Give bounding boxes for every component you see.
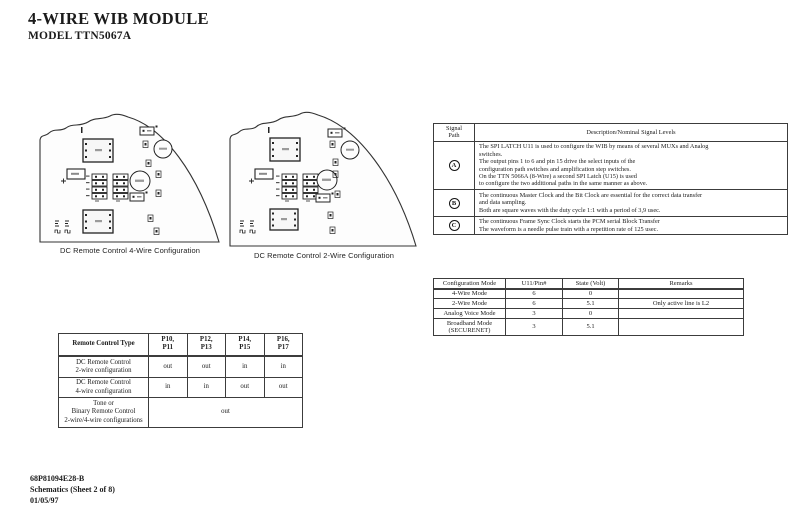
jumper-state-span-cell: out bbox=[149, 398, 303, 428]
caption-2wire: DC Remote Control 2-Wire Configuration bbox=[226, 251, 422, 260]
remote-control-table: Remote Control Type P10, P11 P12, P13 P1… bbox=[58, 333, 303, 428]
table-row: 2-Wire Mode 6 5.1 Only active line is L2 bbox=[434, 299, 744, 309]
p14-p15-header: P14, P15 bbox=[226, 334, 265, 356]
pin-header: U11/Pin# bbox=[506, 279, 563, 289]
sheet-info: Schematics (Sheet 2 of 8) bbox=[30, 484, 115, 495]
board-diagram-2wire bbox=[226, 107, 422, 248]
description-header: Description/Nominal Signal Levels bbox=[475, 124, 788, 142]
p16-p17-header: P16, P17 bbox=[264, 334, 303, 356]
mode-cell: 4-Wire Mode bbox=[434, 289, 506, 299]
remarks-cell: Only active line is L2 bbox=[619, 299, 744, 309]
jumper-state-cell: in bbox=[226, 356, 265, 378]
state-cell: 5.1 bbox=[563, 299, 619, 309]
state-header: State (Volt) bbox=[563, 279, 619, 289]
table-row: DC Remote Control 4-wire configuration i… bbox=[59, 378, 303, 398]
jumper-state-cell: out bbox=[226, 378, 265, 398]
jumper-block-p10-p13 bbox=[282, 174, 297, 202]
board-diagram-4wire bbox=[38, 110, 222, 244]
caption-4wire: DC Remote Control 4-Wire Configuration bbox=[38, 246, 222, 255]
state-cell: 5.1 bbox=[563, 319, 619, 336]
state-cell: 0 bbox=[563, 309, 619, 319]
remote-type-cell: DC Remote Control 4-wire configuration bbox=[59, 378, 149, 398]
doc-number: 68P81094E28-B bbox=[30, 473, 115, 484]
signal-b-badge: B bbox=[449, 198, 460, 209]
signal-a-badge: A bbox=[449, 160, 460, 171]
ic-u5 bbox=[83, 210, 113, 233]
signal-c-badge: C bbox=[449, 220, 460, 231]
table-row: A The SPI LATCH U11 is used to configure… bbox=[434, 141, 788, 190]
doc-date: 01/05/97 bbox=[30, 495, 115, 506]
state-cell: 0 bbox=[563, 289, 619, 299]
remote-type-cell: Tone or Binary Remote Control 2-wire/4-w… bbox=[59, 398, 149, 428]
signal-path-table: Signal Path Description/Nominal Signal L… bbox=[433, 123, 788, 235]
page-subtitle: MODEL TTN5067A bbox=[28, 30, 131, 42]
table-row: DC Remote Control 2-wire configuration o… bbox=[59, 356, 303, 378]
pin-cell: 6 bbox=[506, 289, 563, 299]
ic-u5 bbox=[270, 209, 298, 230]
pin-cell: 6 bbox=[506, 299, 563, 309]
jumper-state-cell: out bbox=[264, 378, 303, 398]
table-row: B The continuous Master Clock and the Bi… bbox=[434, 190, 788, 216]
mode-cell: Analog Voice Mode bbox=[434, 309, 506, 319]
jumper-state-cell: out bbox=[149, 356, 188, 378]
table-row: Tone or Binary Remote Control 2-wire/4-w… bbox=[59, 398, 303, 428]
remote-type-header: Remote Control Type bbox=[59, 334, 149, 356]
mode-cell: Broadband Mode (SECURENET) bbox=[434, 319, 506, 336]
jumper-block-p10-p13 bbox=[92, 174, 107, 202]
jumper-block-p14-p17 bbox=[113, 174, 128, 202]
remarks-cell bbox=[619, 309, 744, 319]
remarks-header: Remarks bbox=[619, 279, 744, 289]
page-title: 4-WIRE WIB MODULE bbox=[28, 9, 209, 29]
footer: 68P81094E28-B Schematics (Sheet 2 of 8) … bbox=[30, 473, 115, 507]
pin-cell: 3 bbox=[506, 319, 563, 336]
remarks-cell bbox=[619, 319, 744, 336]
p12-p13-header: P12, P13 bbox=[187, 334, 226, 356]
signal-path-header: Signal Path bbox=[434, 124, 475, 142]
signal-b-description: The continuous Master Clock and the Bit … bbox=[475, 190, 788, 216]
jumper-state-cell: in bbox=[264, 356, 303, 378]
table-row: 4-Wire Mode 6 0 bbox=[434, 289, 744, 299]
jumper-state-cell: in bbox=[149, 378, 188, 398]
pin-cell: 3 bbox=[506, 309, 563, 319]
table-row: Broadband Mode (SECURENET) 3 5.1 bbox=[434, 319, 744, 336]
configuration-mode-table: Configuration Mode U11/Pin# State (Volt)… bbox=[433, 278, 744, 336]
table-row: C The continuous Frame Sync Clock starts… bbox=[434, 216, 788, 235]
mode-cell: 2-Wire Mode bbox=[434, 299, 506, 309]
schematic-sheet: 4-WIRE WIB MODULE MODEL TTN5067A DC Remo… bbox=[0, 0, 800, 515]
remarks-cell bbox=[619, 289, 744, 299]
ic-u1 bbox=[270, 138, 300, 161]
config-mode-header: Configuration Mode bbox=[434, 279, 506, 289]
remote-type-cell: DC Remote Control 2-wire configuration bbox=[59, 356, 149, 378]
ic-u1 bbox=[83, 139, 113, 162]
jumper-state-cell: out bbox=[187, 356, 226, 378]
jumper-state-cell: in bbox=[187, 378, 226, 398]
signal-a-description: The SPI LATCH U11 is used to configure t… bbox=[475, 141, 788, 190]
table-row: Analog Voice Mode 3 0 bbox=[434, 309, 744, 319]
signal-c-description: The continuous Frame Sync Clock starts t… bbox=[475, 216, 788, 235]
p10-p11-header: P10, P11 bbox=[149, 334, 188, 356]
